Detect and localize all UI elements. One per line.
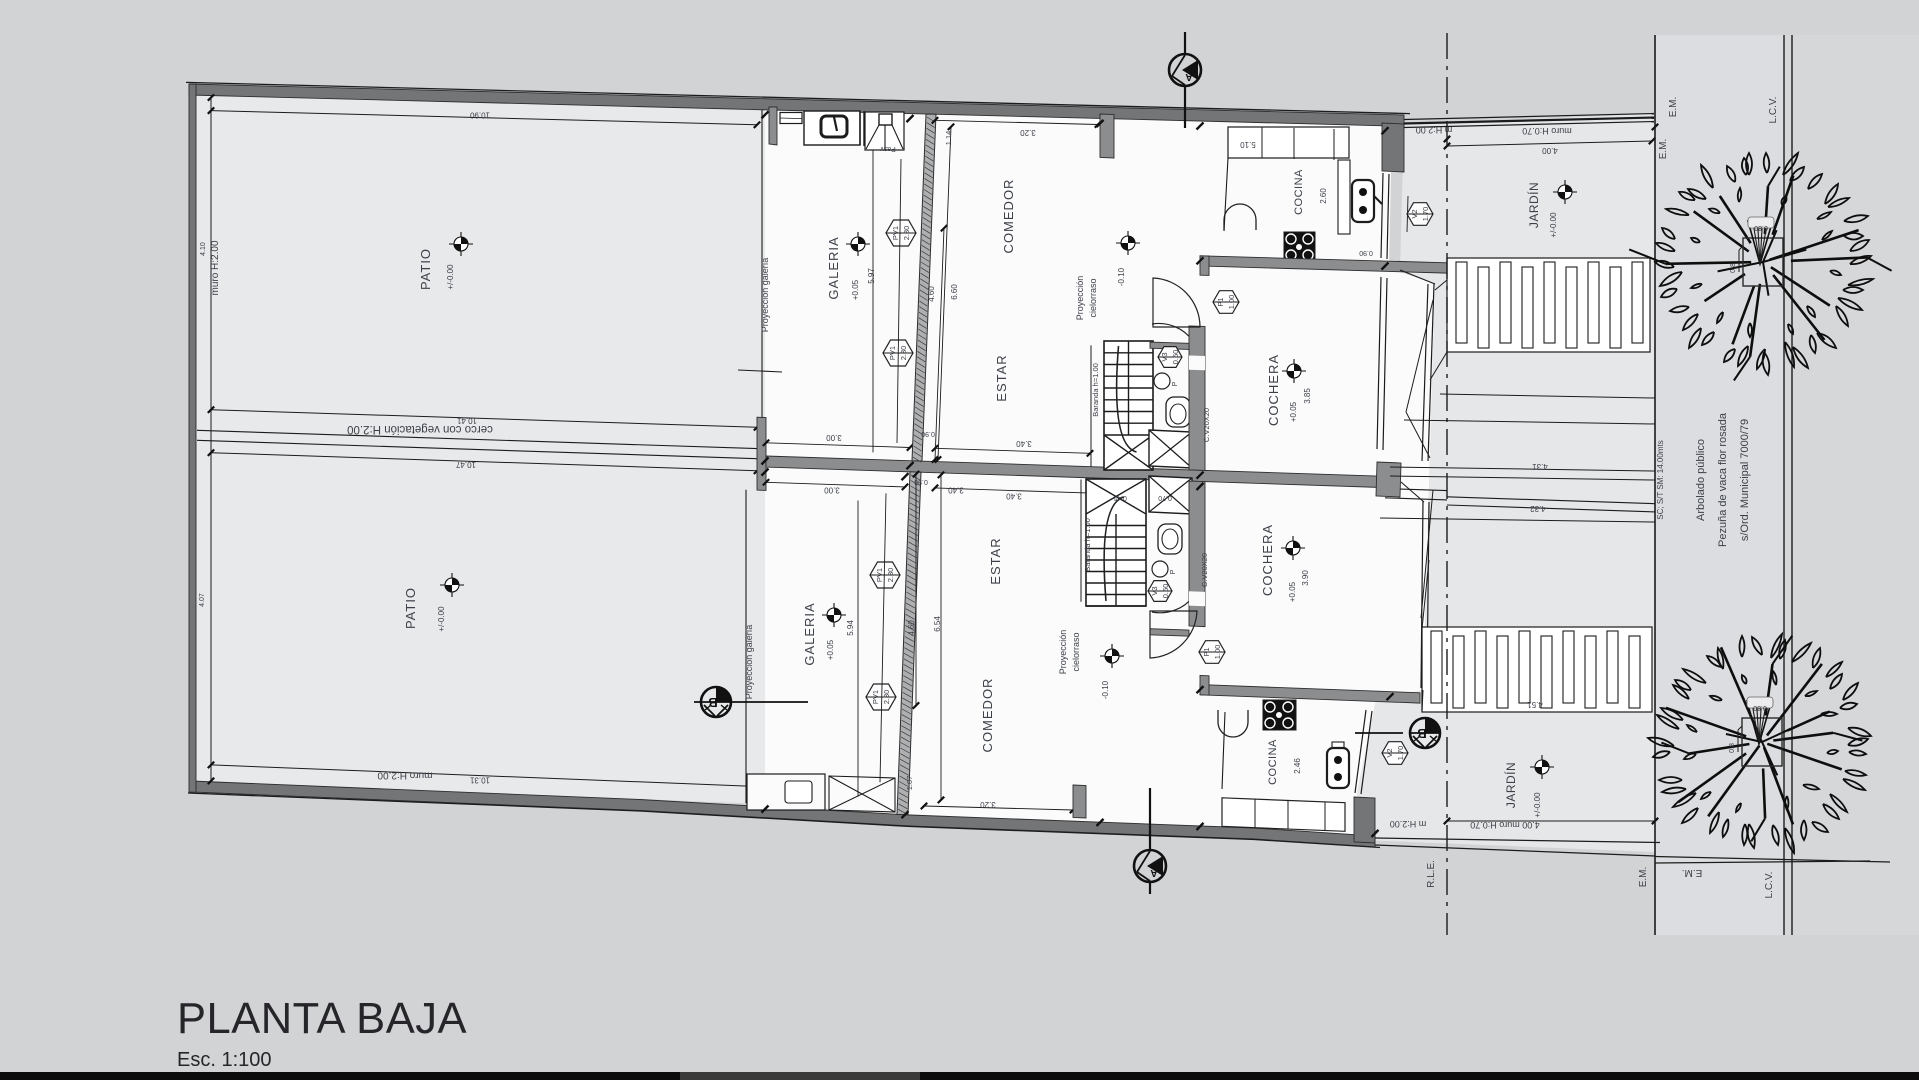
svg-text:4.00 muro H:0.70: 4.00 muro H:0.70 xyxy=(1470,820,1540,830)
svg-text:0.60: 0.60 xyxy=(1161,584,1170,599)
svg-text:0.90: 0.90 xyxy=(921,430,935,437)
svg-text:cerco con vegetación H:2.00: cerco con vegetación H:2.00 xyxy=(347,423,493,435)
svg-text:+/-0.00: +/-0.00 xyxy=(437,606,446,632)
svg-text:P1: P1 xyxy=(1216,297,1225,306)
svg-text:COCHERA: COCHERA xyxy=(1260,524,1275,596)
svg-text:3.40: 3.40 xyxy=(948,486,964,495)
svg-text:0.8: 0.8 xyxy=(1729,743,1736,753)
svg-text:V3: V3 xyxy=(1160,352,1169,361)
svg-text:V2: V2 xyxy=(1385,748,1394,757)
svg-text:B: B xyxy=(708,695,717,710)
svg-text:0.80: 0.80 xyxy=(1754,224,1768,231)
svg-text:4.32: 4.32 xyxy=(1530,504,1546,513)
svg-text:L.C.V.: L.C.V. xyxy=(1764,872,1775,899)
svg-text:0.90: 0.90 xyxy=(914,478,928,485)
svg-text:B: B xyxy=(1417,726,1426,741)
svg-text:COCINA: COCINA xyxy=(1267,739,1279,785)
svg-text:Proyección: Proyección xyxy=(1075,276,1085,321)
svg-text:JARDÍN: JARDÍN xyxy=(1526,182,1541,228)
svg-text:+0.05: +0.05 xyxy=(1288,581,1297,602)
svg-text:m H:2.00: m H:2.00 xyxy=(1390,819,1427,829)
svg-text:4.60: 4.60 xyxy=(907,620,916,636)
svg-text:6.60: 6.60 xyxy=(950,284,959,300)
svg-text:3.20: 3.20 xyxy=(1020,128,1036,137)
svg-text:PLANTA BAJA: PLANTA BAJA xyxy=(177,995,467,1043)
svg-text:4.51: 4.51 xyxy=(1527,700,1543,709)
svg-text:10.90: 10.90 xyxy=(469,111,490,120)
svg-text:A: A xyxy=(1185,71,1192,82)
svg-text:Baranda h=1.00: Baranda h=1.00 xyxy=(1083,518,1092,572)
svg-text:GALERIA: GALERIA xyxy=(826,236,841,299)
svg-text:cielorraso: cielorraso xyxy=(1071,632,1081,671)
svg-text:1.00: 1.00 xyxy=(1213,645,1222,660)
svg-text:2.46: 2.46 xyxy=(1293,758,1302,774)
svg-text:V2: V2 xyxy=(1410,209,1419,218)
svg-text:E.M.: E.M. xyxy=(1682,867,1703,878)
svg-text:4.07: 4.07 xyxy=(199,593,206,607)
svg-text:P: P xyxy=(1172,381,1179,386)
svg-text:ESTAR: ESTAR xyxy=(994,354,1009,401)
svg-text:Baranda h=1.00: Baranda h=1.00 xyxy=(1091,363,1100,417)
svg-text:P1: P1 xyxy=(1202,647,1211,656)
svg-text:Proyección: Proyección xyxy=(1058,630,1068,675)
svg-text:PV1: PV1 xyxy=(891,226,900,240)
svg-text:muro H:2.00: muro H:2.00 xyxy=(210,240,221,295)
svg-text:0.45: 0.45 xyxy=(1113,494,1127,501)
svg-text:4.10: 4.10 xyxy=(200,242,207,256)
svg-text:Arbolado público: Arbolado público xyxy=(1695,439,1707,521)
svg-text:-0.10: -0.10 xyxy=(1117,267,1126,286)
svg-text:E.M.: E.M. xyxy=(1658,139,1669,160)
svg-text:0.90: 0.90 xyxy=(1359,249,1373,256)
svg-text:Pasv: Pasv xyxy=(880,145,896,152)
svg-text:10.47: 10.47 xyxy=(455,460,476,469)
svg-text:PATIO: PATIO xyxy=(418,248,433,290)
svg-text:3.85: 3.85 xyxy=(1303,388,1312,404)
svg-text:3.20: 3.20 xyxy=(980,800,996,809)
svg-text:5.97: 5.97 xyxy=(867,268,876,284)
svg-text:1.14: 1.14 xyxy=(944,131,953,146)
svg-text:3.40: 3.40 xyxy=(1016,439,1032,448)
svg-text:COCHERA: COCHERA xyxy=(1266,354,1281,426)
svg-text:1.07: 1.07 xyxy=(905,776,914,791)
svg-text:E.M.: E.M. xyxy=(1638,867,1649,888)
svg-text:4.31: 4.31 xyxy=(1532,462,1548,471)
svg-text:+/-0.00: +/-0.00 xyxy=(1549,212,1558,238)
svg-text:5.94: 5.94 xyxy=(846,620,855,636)
svg-text:COMEDOR: COMEDOR xyxy=(980,678,995,753)
svg-text:V3: V3 xyxy=(1150,586,1159,595)
svg-text:0.80: 0.80 xyxy=(1753,704,1767,711)
svg-text:SC; S/T SM: 14.00mts: SC; S/T SM: 14.00mts xyxy=(1656,440,1665,519)
svg-text:2.60: 2.60 xyxy=(1319,188,1328,204)
svg-text:PV1: PV1 xyxy=(875,568,884,582)
svg-text:2.30: 2.30 xyxy=(886,568,895,583)
svg-text:0.8: 0.8 xyxy=(1730,263,1737,273)
svg-text:C.V20X20: C.V20X20 xyxy=(1202,408,1211,442)
svg-text:1.00: 1.00 xyxy=(1227,295,1236,310)
svg-text:-0.10: -0.10 xyxy=(1101,680,1110,699)
svg-text:4.60: 4.60 xyxy=(927,286,936,302)
svg-text:+/-0.00: +/-0.00 xyxy=(1533,792,1542,818)
svg-text:2.30: 2.30 xyxy=(902,226,911,241)
svg-text:C.V20X20: C.V20X20 xyxy=(1200,553,1209,587)
svg-text:Pezuña de vaca flor rosada: Pezuña de vaca flor rosada xyxy=(1717,412,1729,547)
svg-text:Proyección galería: Proyección galería xyxy=(760,258,770,333)
svg-text:Proyección galería: Proyección galería xyxy=(744,625,754,700)
svg-text:s/Ord. Municipal 7000/79: s/Ord. Municipal 7000/79 xyxy=(1739,419,1751,541)
svg-text:A: A xyxy=(1150,867,1157,878)
svg-text:0.60: 0.60 xyxy=(1171,350,1180,365)
svg-text:COMEDOR: COMEDOR xyxy=(1001,179,1016,254)
svg-text:Esc. 1:100: Esc. 1:100 xyxy=(177,1049,272,1071)
svg-text:6.54: 6.54 xyxy=(933,616,942,632)
svg-text:+0.05: +0.05 xyxy=(851,279,860,300)
svg-text:ESTAR: ESTAR xyxy=(988,537,1003,584)
svg-text:1.70: 1.70 xyxy=(1396,746,1405,761)
svg-text:COCINA: COCINA xyxy=(1293,169,1305,215)
svg-text:3.40: 3.40 xyxy=(1006,492,1022,501)
svg-text:GALERIA: GALERIA xyxy=(802,602,817,665)
svg-text:2.30: 2.30 xyxy=(882,690,891,705)
svg-text:0.70: 0.70 xyxy=(1158,494,1172,501)
svg-text:P: P xyxy=(1170,569,1177,574)
svg-text:5.10: 5.10 xyxy=(1240,140,1256,149)
svg-text:E.M.: E.M. xyxy=(1668,97,1679,118)
svg-text:R.L.E.: R.L.E. xyxy=(1426,860,1437,888)
svg-text:3.00: 3.00 xyxy=(824,486,840,495)
svg-text:+/-0.00: +/-0.00 xyxy=(446,264,455,290)
svg-text:10.31: 10.31 xyxy=(469,776,490,785)
svg-text:2.30: 2.30 xyxy=(899,346,908,361)
svg-text:PV1: PV1 xyxy=(888,346,897,360)
svg-text:L.C.V.: L.C.V. xyxy=(1768,97,1779,124)
svg-text:PATIO: PATIO xyxy=(403,587,418,629)
svg-text:PV1: PV1 xyxy=(871,690,880,704)
svg-text:muro H:2.00: muro H:2.00 xyxy=(377,770,432,781)
svg-text:+0.05: +0.05 xyxy=(1289,401,1298,422)
svg-text:cielorraso: cielorraso xyxy=(1088,278,1098,317)
svg-text:muro H:0.70: muro H:0.70 xyxy=(1522,126,1572,136)
svg-text:+0.05: +0.05 xyxy=(826,639,835,660)
svg-text:1.70: 1.70 xyxy=(1421,207,1430,222)
svg-text:3.00: 3.00 xyxy=(826,433,842,442)
svg-text:4.00: 4.00 xyxy=(1542,146,1558,155)
svg-text:3.90: 3.90 xyxy=(1301,570,1310,586)
svg-text:JARDÍN: JARDÍN xyxy=(1503,762,1518,808)
